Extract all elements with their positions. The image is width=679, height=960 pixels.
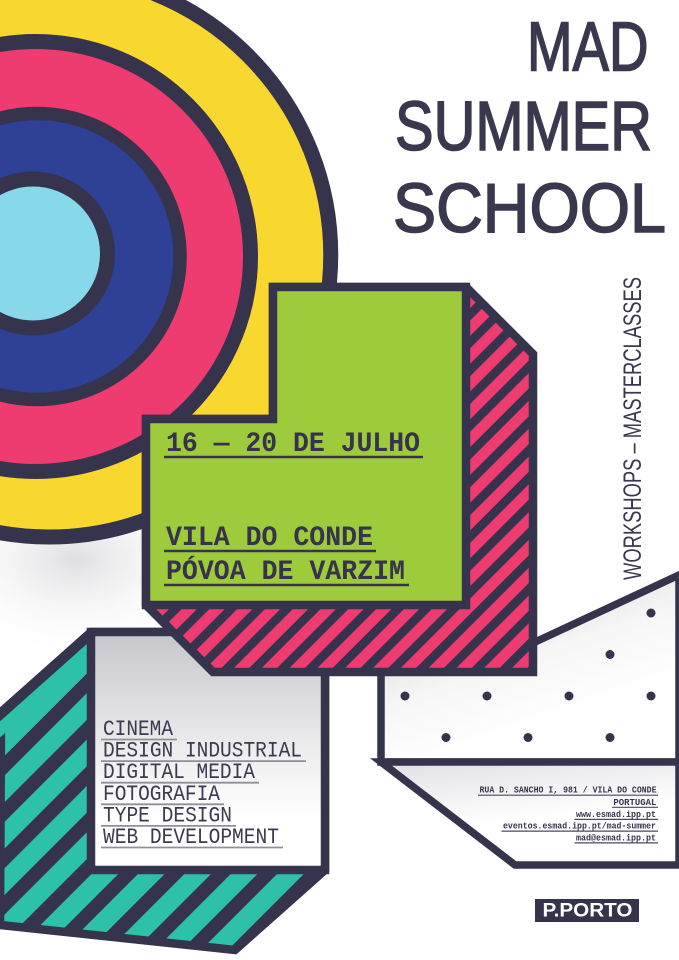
svg-text:VILA DO CONDE: VILA DO CONDE (166, 523, 373, 554)
svg-text:SUMMER: SUMMER (395, 87, 652, 165)
svg-text:RUA D. SANCHO I, 981 / VILA DO: RUA D. SANCHO I, 981 / VILA DO CONDE (480, 786, 658, 796)
svg-text:P.PORTO: P.PORTO (543, 901, 633, 922)
svg-text:16 — 20 DE JULHO: 16 — 20 DE JULHO (166, 429, 420, 460)
svg-text:WEB DEVELOPMENT: WEB DEVELOPMENT (103, 825, 279, 850)
svg-text:SCHOOL: SCHOOL (393, 169, 666, 247)
svg-text:mad@esmad.ipp.pt: mad@esmad.ipp.pt (576, 833, 656, 843)
svg-text:PÓVOA DE VARZIM: PÓVOA DE VARZIM (166, 555, 405, 588)
svg-text:MAD: MAD (527, 8, 649, 86)
svg-text:WORKSHOPS – MASTERCLASSES: WORKSHOPS – MASTERCLASSES (620, 277, 647, 580)
svg-text:eventos.esmad.ipp.pt/mad-summe: eventos.esmad.ipp.pt/mad-summer (503, 822, 656, 832)
svg-text:PORTUGAL: PORTUGAL (613, 798, 656, 808)
svg-text:www.esmad.ipp.pt: www.esmad.ipp.pt (576, 810, 656, 820)
